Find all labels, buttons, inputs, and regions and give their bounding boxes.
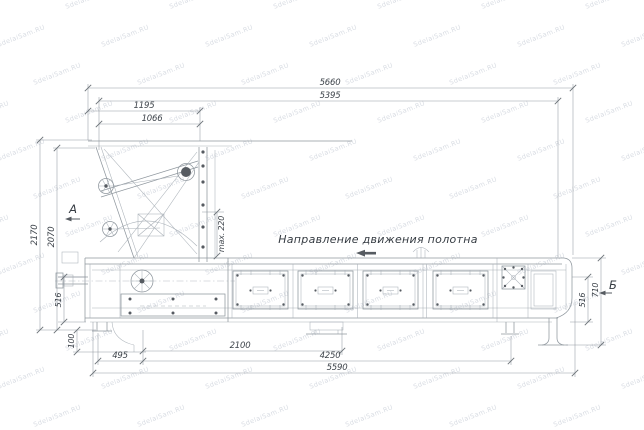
dim-total-length-5660: 5660 — [320, 78, 341, 88]
dim-offset-495: 495 — [112, 351, 128, 361]
dim-clearance-100: 100 — [67, 334, 76, 349]
dim-height-710: 710 — [591, 283, 600, 298]
dim-height-2170: 2170 — [30, 225, 40, 246]
belt-direction-arrow — [356, 250, 376, 257]
view-arrow-a — [65, 217, 80, 222]
bolted-base-plate — [121, 294, 225, 316]
view-label-b: Б — [609, 278, 617, 292]
drive-pulley — [131, 270, 153, 292]
dimension-layer: 5660 5395 1195 1066 2170 2070 516 100 49… — [30, 78, 606, 377]
dim-max-gap-220: max. 220 — [217, 216, 226, 252]
belt-direction-label: Направление движения полотна — [278, 233, 478, 246]
tension-screw — [56, 252, 88, 288]
dim-frame-height-right-516: 516 — [578, 293, 587, 308]
support-legs — [92, 318, 568, 352]
drawing-sheet: SdelaiSam.RUSdelaiSam.RUSdelaiSam.RUSdel… — [0, 0, 644, 430]
dim-belt-length-5395: 5395 — [320, 91, 341, 101]
belt-guide-bracket — [413, 247, 429, 258]
conveyor-frame — [55, 247, 572, 322]
dim-span-4250: 4250 — [320, 351, 341, 361]
cross-brace-plate — [502, 266, 525, 289]
dim-frame-height-left-516: 516 — [54, 293, 63, 308]
dim-hopper-1066: 1066 — [142, 114, 164, 124]
dim-span-2100: 2100 — [230, 341, 251, 351]
technical-drawing: 5660 5395 1195 1066 2170 2070 516 100 49… — [0, 0, 644, 430]
dim-height-2070: 2070 — [47, 227, 57, 248]
dim-hopper-1195: 1195 — [134, 101, 155, 111]
dim-base-5590: 5590 — [327, 363, 348, 373]
view-label-a: А — [68, 202, 77, 216]
inspection-panels — [233, 270, 488, 310]
